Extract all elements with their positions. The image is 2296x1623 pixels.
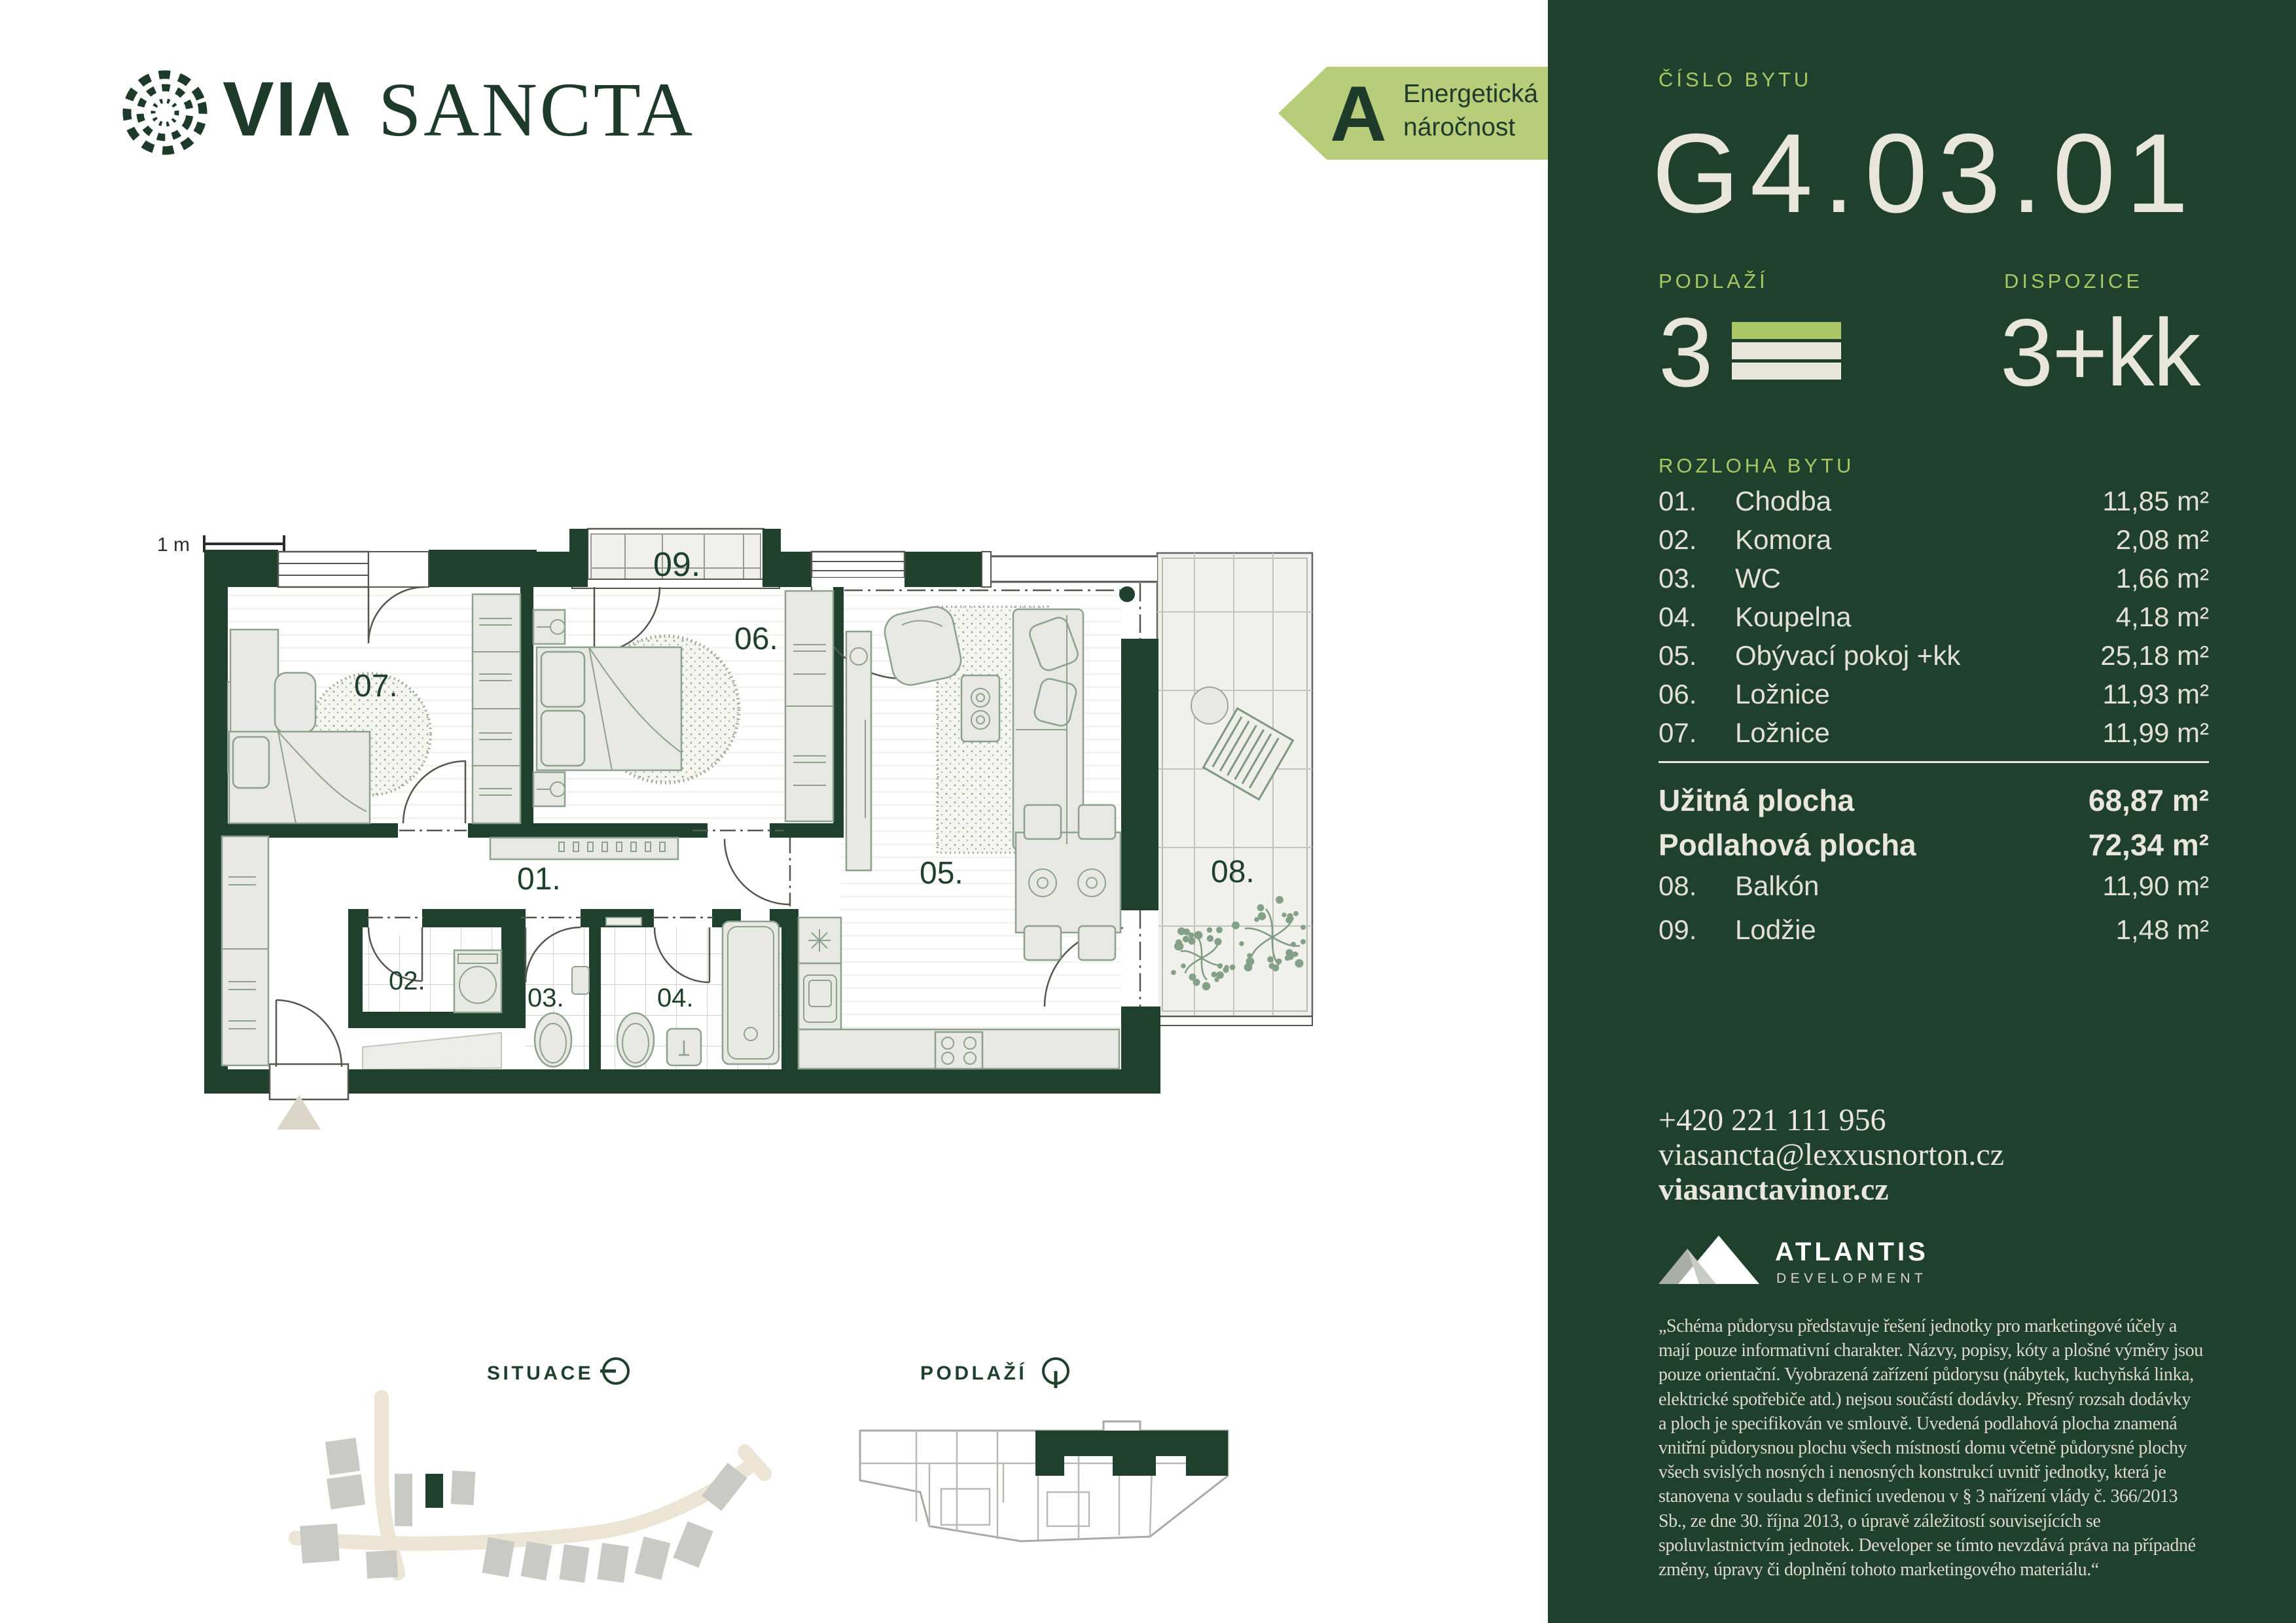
svg-text:01.: 01. [517, 862, 561, 897]
svg-text:04.: 04. [657, 984, 694, 1012]
svg-text:07.: 07. [354, 669, 398, 704]
svg-text:06.: 06. [734, 622, 778, 656]
svg-text:PODLAŽÍ: PODLAŽÍ [920, 1362, 1027, 1384]
svg-text:08.: 08. [1211, 855, 1255, 889]
svg-text:SITUACE: SITUACE [487, 1363, 594, 1384]
svg-text:05.: 05. [920, 856, 963, 891]
svg-text:02.: 02. [389, 967, 425, 995]
svg-text:09.: 09. [653, 546, 700, 584]
svg-text:1 m: 1 m [157, 534, 190, 556]
svg-text:03.: 03. [528, 984, 564, 1012]
